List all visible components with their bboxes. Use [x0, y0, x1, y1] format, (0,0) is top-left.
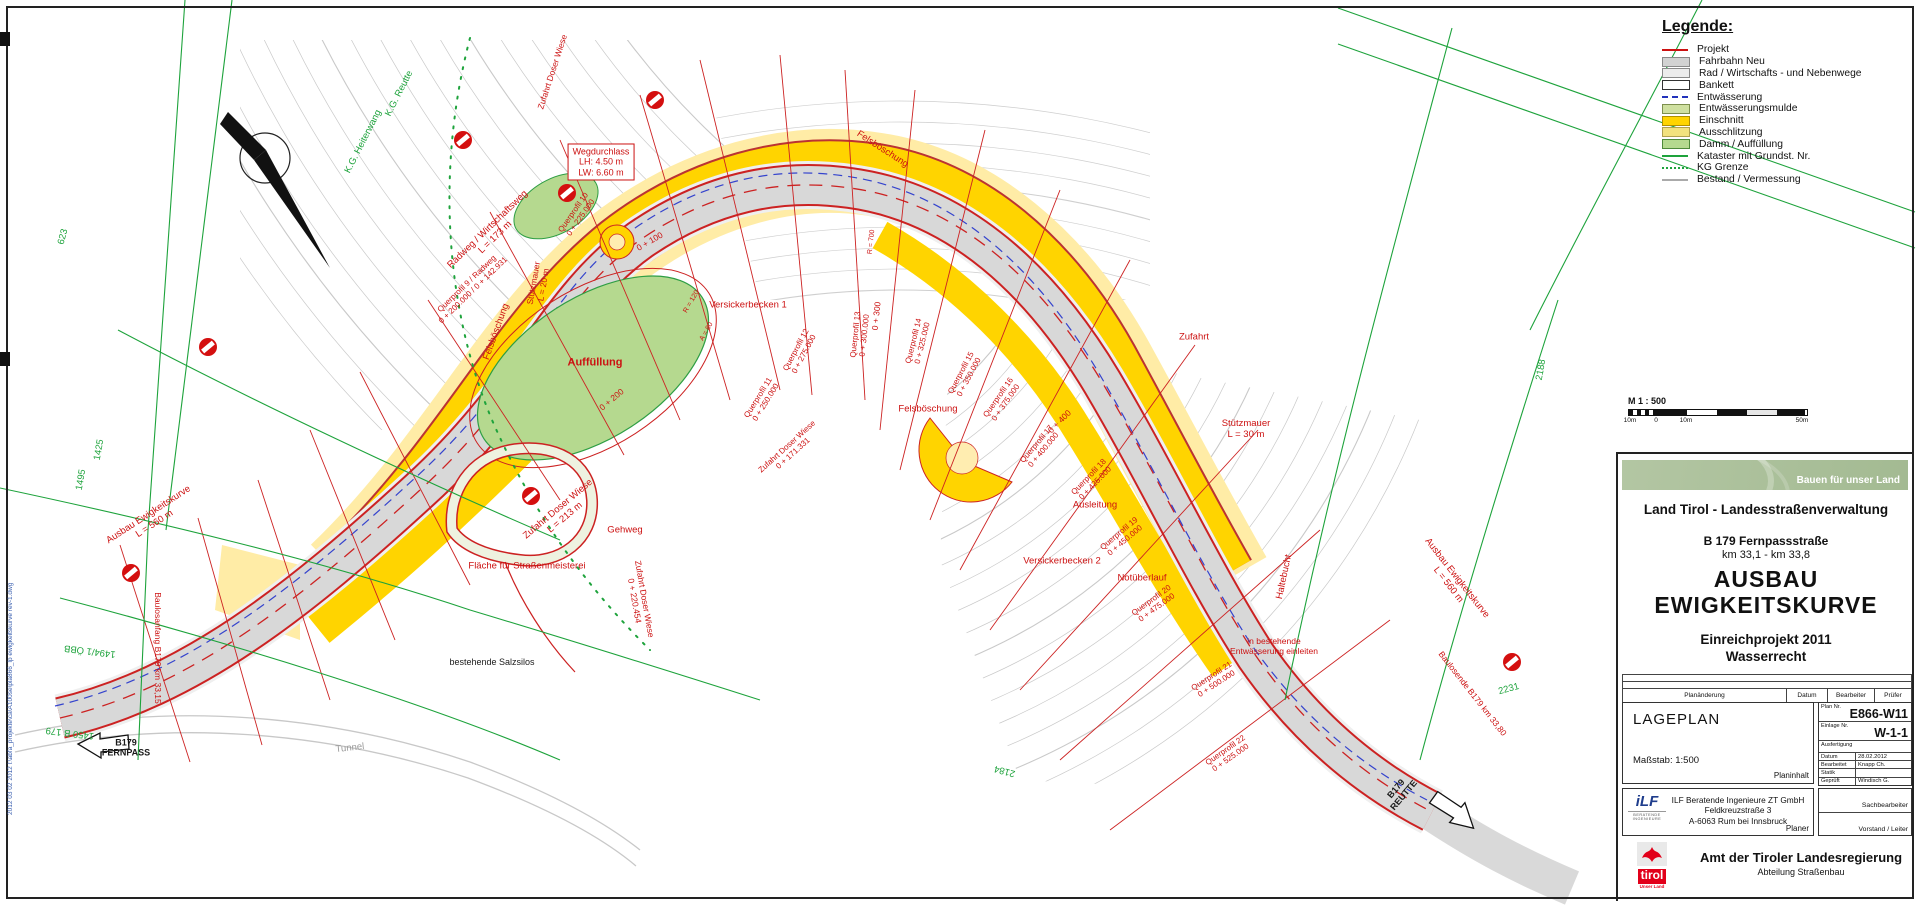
legend-swatch — [1662, 104, 1690, 114]
banner: Bauen für unser Land — [1622, 460, 1908, 490]
map-label: 1425 — [93, 439, 107, 462]
plan-sheet: Wegdurchlass LH: 4.50 m LW: 6.60 mVersic… — [0, 0, 1920, 905]
map-label: Felsböschung — [482, 302, 512, 361]
scale-segment — [1747, 410, 1777, 415]
map-label: Ausbau Ewigkeitskurve L = 560 m — [105, 484, 199, 556]
project-subphase: Wasserrecht — [1618, 649, 1914, 664]
legend-item: Kataster mit Grundst. Nr. — [1662, 150, 1914, 162]
signature-box: Sachbearbeiter Vorstand / Leiter — [1818, 788, 1912, 836]
plan-number-box: Plan Nr.E866-W11Einlage Nr.W-1-1Ausferti… — [1818, 702, 1912, 786]
legend-label: Ausschlitzung — [1699, 127, 1763, 138]
col-planaenderung: Planänderung — [1623, 689, 1786, 702]
legend-swatch — [1662, 68, 1690, 78]
map-label: Querprofil 18 0 + 425.000 — [1069, 457, 1114, 503]
field-label: Ausfertigung — [1821, 742, 1852, 748]
scale-bar: M 1 : 500 10m010m50m — [1628, 396, 1818, 426]
map-label: Ausbau Ewigkeitskurve L = 560 m — [1413, 537, 1491, 628]
title-block: Bauen für unser Land Land Tirol - Landes… — [1616, 452, 1914, 901]
legend-swatch — [1662, 127, 1690, 137]
map-label: Zufahrt Doser Wiese 0 + 220.454 — [623, 560, 656, 640]
plan-content-box: LAGEPLAN Maßstab: 1:500 Planinhalt — [1622, 702, 1814, 784]
field-label: Bearbeitet — [1821, 762, 1855, 768]
plan-type: LAGEPLAN — [1633, 711, 1720, 728]
tirol-logo: tirol Unser Land — [1630, 842, 1674, 889]
legend: Legende: ProjektFahrbahn NeuRad / Wirtsc… — [1662, 18, 1914, 186]
map-label: 0 + 300 — [871, 301, 884, 330]
map-label: Versickerbecken 2 — [1023, 557, 1101, 568]
road-name: B 179 Fernpassstraße — [1618, 534, 1914, 548]
map-label: 0 + 100 — [635, 231, 665, 254]
legend-label: Bankett — [1699, 80, 1734, 91]
legend-item: Rad / Wirtschafts - und Nebenwege — [1662, 68, 1914, 80]
authority-department: Abteilung Straßenbau — [1692, 867, 1910, 877]
legend-item: KG Grenze — [1662, 162, 1914, 174]
field-row-ausfertigung: Ausfertigung — [1819, 740, 1911, 752]
col-datum: Datum — [1786, 689, 1827, 702]
map-label: Zufahrt Doser Wiese L = 213 m — [522, 478, 603, 551]
project-title-line1: AUSBAU — [1618, 566, 1914, 593]
map-label: Querprofil 14 0 + 325.000 — [903, 317, 932, 366]
map-label: 0 + 400 — [1046, 408, 1073, 435]
legend-swatch — [1662, 179, 1688, 181]
banner-slogan: Bauen für unser Land — [1797, 475, 1900, 486]
ilf-logo-subtext: BERATENDE INGENIEURE — [1628, 811, 1666, 821]
legend-swatch — [1662, 80, 1690, 90]
legend-item: Ausschlitzung — [1662, 127, 1914, 139]
field-value: 28.02.2012 — [1855, 753, 1911, 760]
scale-label: M 1 : 500 — [1628, 396, 1818, 406]
scale-segment — [1629, 410, 1657, 415]
field-value — [1855, 769, 1911, 776]
vorstand-label: Vorstand / Leiter — [1859, 826, 1909, 833]
map-label: R = 120 — [682, 289, 701, 314]
legend-label: Kataster mit Grundst. Nr. — [1697, 151, 1810, 162]
legend-label: Damm / Auffüllung — [1699, 139, 1783, 150]
map-label: 1494/1 ÖBB — [64, 641, 117, 658]
legend-item: Bankett — [1662, 79, 1914, 91]
map-label: 0 + 200 — [598, 387, 626, 413]
legend-swatch — [1662, 96, 1688, 98]
field-row-einlage-nr-: Einlage Nr.W-1-1 — [1819, 721, 1911, 740]
company-box: iLF BERATENDE INGENIEURE ILF Beratende I… — [1622, 788, 1814, 836]
field-value: Knapp Ch. — [1855, 761, 1911, 768]
map-label: A = 80 — [699, 321, 716, 342]
project-title-line2: EWIGKEITSKURVE — [1618, 592, 1914, 619]
project-phase: Einreichprojekt 2011 — [1618, 632, 1914, 647]
legend-swatch — [1662, 116, 1690, 126]
map-label: Querprofil 21 0 + 500.000 — [1190, 660, 1239, 701]
map-label: Zufahrt — [1179, 333, 1209, 344]
ilf-logo: iLF BERATENDE INGENIEURE — [1628, 794, 1666, 821]
map-label: 2188 — [1535, 359, 1549, 382]
field-row-bearbeitet: BearbeitetKnapp Ch. — [1819, 760, 1911, 768]
legend-item: Einschnitt — [1662, 115, 1914, 127]
map-label: Tunnel — [335, 742, 365, 756]
tirol-eagle-icon — [1637, 842, 1667, 866]
tirol-logo-subtext: Unser Land — [1630, 884, 1674, 889]
map-label: Querprofil 19 0 + 450.000 — [1098, 515, 1145, 559]
field-label: Statik — [1821, 770, 1855, 776]
map-label: Baulosanfang B179 km 33,15 — [152, 592, 162, 704]
field-label: Geprüft — [1821, 778, 1855, 784]
map-label: Querprofil 16 0 + 375.000 — [981, 376, 1023, 424]
organisation: Land Tirol - Landesstraßenverwaltung — [1618, 502, 1914, 517]
company-name: ILF Beratende Ingenieure ZT GmbH — [1667, 795, 1809, 805]
legend-label: Bestand / Vermessung — [1697, 174, 1801, 185]
scale-segment — [1717, 410, 1747, 415]
file-path-text: 2012 03 02 2012 l:\abfa_projekte\ca\A100… — [7, 583, 14, 815]
authority-name: Amt der Tiroler Landesregierung — [1692, 850, 1910, 865]
map-label: 1450 B 179 — [45, 724, 95, 741]
planer-label: Planer — [1786, 824, 1809, 833]
map-label: R = 700 — [867, 229, 878, 254]
col-bearbeiter: Bearbeiter — [1827, 689, 1874, 702]
map-label: B179 REUTTE — [1381, 772, 1420, 813]
map-label: Auffüllung — [568, 357, 623, 370]
map-label: in bestehende Entwässerung einleiten — [1230, 637, 1318, 657]
title-block-footer: tirol Unser Land Amt der Tiroler Landesr… — [1622, 840, 1910, 896]
map-label: Gehweg — [607, 526, 642, 537]
scale-tick-label: 10m — [1624, 417, 1637, 424]
scale-segment — [1687, 410, 1717, 415]
map-label: Zufahrt Doser Wiese 0 + 171.331 — [757, 419, 824, 482]
map-label: Ausleitung — [1073, 501, 1117, 512]
legend-label: Rad / Wirtschafts - und Nebenwege — [1699, 68, 1862, 79]
legend-item: Projekt — [1662, 44, 1914, 56]
field-label: Einlage Nr. — [1821, 723, 1848, 729]
plan-change-table: Planänderung Datum Bearbeiter Prüfer — [1622, 674, 1912, 703]
legend-swatch — [1662, 139, 1690, 149]
ilf-logo-text: iLF — [1628, 794, 1666, 809]
scale-tick-label: 0 — [1654, 417, 1658, 424]
fold-mark — [0, 352, 10, 366]
legend-label: Einschnitt — [1699, 115, 1744, 126]
map-label: Querprofil 10 0 + 225.000 — [556, 191, 598, 239]
map-label: bestehende Salzsilos — [449, 657, 534, 667]
map-label: 1495 — [75, 469, 89, 492]
map-label: Wegdurchlass LH: 4.50 m LW: 6.60 m — [568, 143, 635, 180]
map-label: Stützmauer L = 30 m — [1222, 419, 1271, 441]
planinhalt-label: Planinhalt — [1774, 771, 1809, 780]
field-row-gepr-ft: GeprüftWindisch G. — [1819, 777, 1911, 785]
legend-item: Entwässerung — [1662, 91, 1914, 103]
legend-swatch — [1662, 49, 1688, 51]
plan-scale: Maßstab: 1:500 — [1633, 755, 1699, 766]
km-range: km 33,1 - km 33,8 — [1618, 549, 1914, 561]
legend-label: Entwässerungsmulde — [1699, 103, 1797, 114]
map-label: Querprofil 15 0 + 350.000 — [946, 350, 984, 399]
map-label: Felsböschung — [898, 405, 957, 416]
map-label: Haltebucht — [1275, 554, 1295, 601]
legend-label: Projekt — [1697, 44, 1729, 55]
scale-bar-ticks: 10m010m50m — [1628, 416, 1806, 426]
field-row-datum: Datum28.02.2012 — [1819, 752, 1911, 760]
field-row-statik: Statik — [1819, 768, 1911, 776]
legend-item: Bestand / Vermessung — [1662, 174, 1914, 186]
scale-tick-label: 10m — [1680, 417, 1693, 424]
map-label: Querprofil 22 0 + 525.000 — [1204, 733, 1252, 775]
field-value: W-1-1 — [1874, 726, 1908, 740]
field-label: Plan Nr. — [1821, 704, 1841, 710]
map-label: Versickerbecken 1 — [709, 301, 787, 312]
map-label: 623 — [57, 228, 72, 246]
col-pruefer: Prüfer — [1874, 689, 1911, 702]
map-label: 2184 — [993, 762, 1016, 778]
map-label: 2231 — [1497, 682, 1520, 698]
map-label: Felsböschung — [854, 129, 910, 170]
legend-label: Entwässerung — [1697, 92, 1762, 103]
field-label: Datum — [1821, 754, 1855, 760]
map-label: Notüberlauf — [1117, 574, 1166, 585]
legend-swatch — [1662, 167, 1688, 169]
map-label: Querprofil 12 0 + 275.000 — [781, 327, 819, 376]
map-label: Fläche für Straßenmeisterei — [468, 562, 585, 573]
legend-swatch — [1662, 155, 1688, 157]
field-value: E866-W11 — [1850, 707, 1908, 721]
field-value: Windisch G. — [1855, 778, 1911, 785]
map-label: Querprofil 13 0 + 300.000 — [848, 311, 871, 359]
map-label: B179 FERNPASS — [102, 738, 150, 759]
company-street: Feldkreuzstraße 3 — [1667, 805, 1809, 815]
scale-tick-label: 50m — [1796, 417, 1809, 424]
tirol-logo-text: tirol — [1638, 869, 1667, 884]
sachbearbeiter-label: Sachbearbeiter — [1862, 802, 1908, 809]
scale-bar-graphic — [1628, 409, 1808, 416]
map-label: Zufahrt Doser Wiese — [536, 33, 569, 110]
map-label: Querprofil 20 0 + 475.000 — [1130, 583, 1178, 625]
legend-item: Damm / Auffüllung — [1662, 138, 1914, 150]
legend-item: Fahrbahn Neu — [1662, 56, 1914, 68]
legend-item: Entwässerungsmulde — [1662, 103, 1914, 115]
field-row-plan-nr-: Plan Nr.E866-W11 — [1819, 703, 1911, 721]
fold-mark — [0, 32, 10, 46]
legend-swatch — [1662, 57, 1690, 67]
map-label: Querprofil 11 0 + 250.000 — [742, 376, 782, 424]
scale-segment — [1777, 410, 1805, 415]
legend-label: Fahrbahn Neu — [1699, 56, 1765, 67]
legend-title: Legende: — [1662, 18, 1914, 36]
scale-segment — [1657, 410, 1687, 415]
map-label: K.G. Heiterwang — [343, 108, 384, 175]
map-label: Baulosende B179 km 33,80 — [1436, 650, 1508, 738]
legend-label: KG Grenze — [1697, 162, 1749, 173]
map-label: Stützmauer L = 20 m — [526, 261, 553, 307]
map-label: K.G. Reutte — [384, 69, 416, 118]
